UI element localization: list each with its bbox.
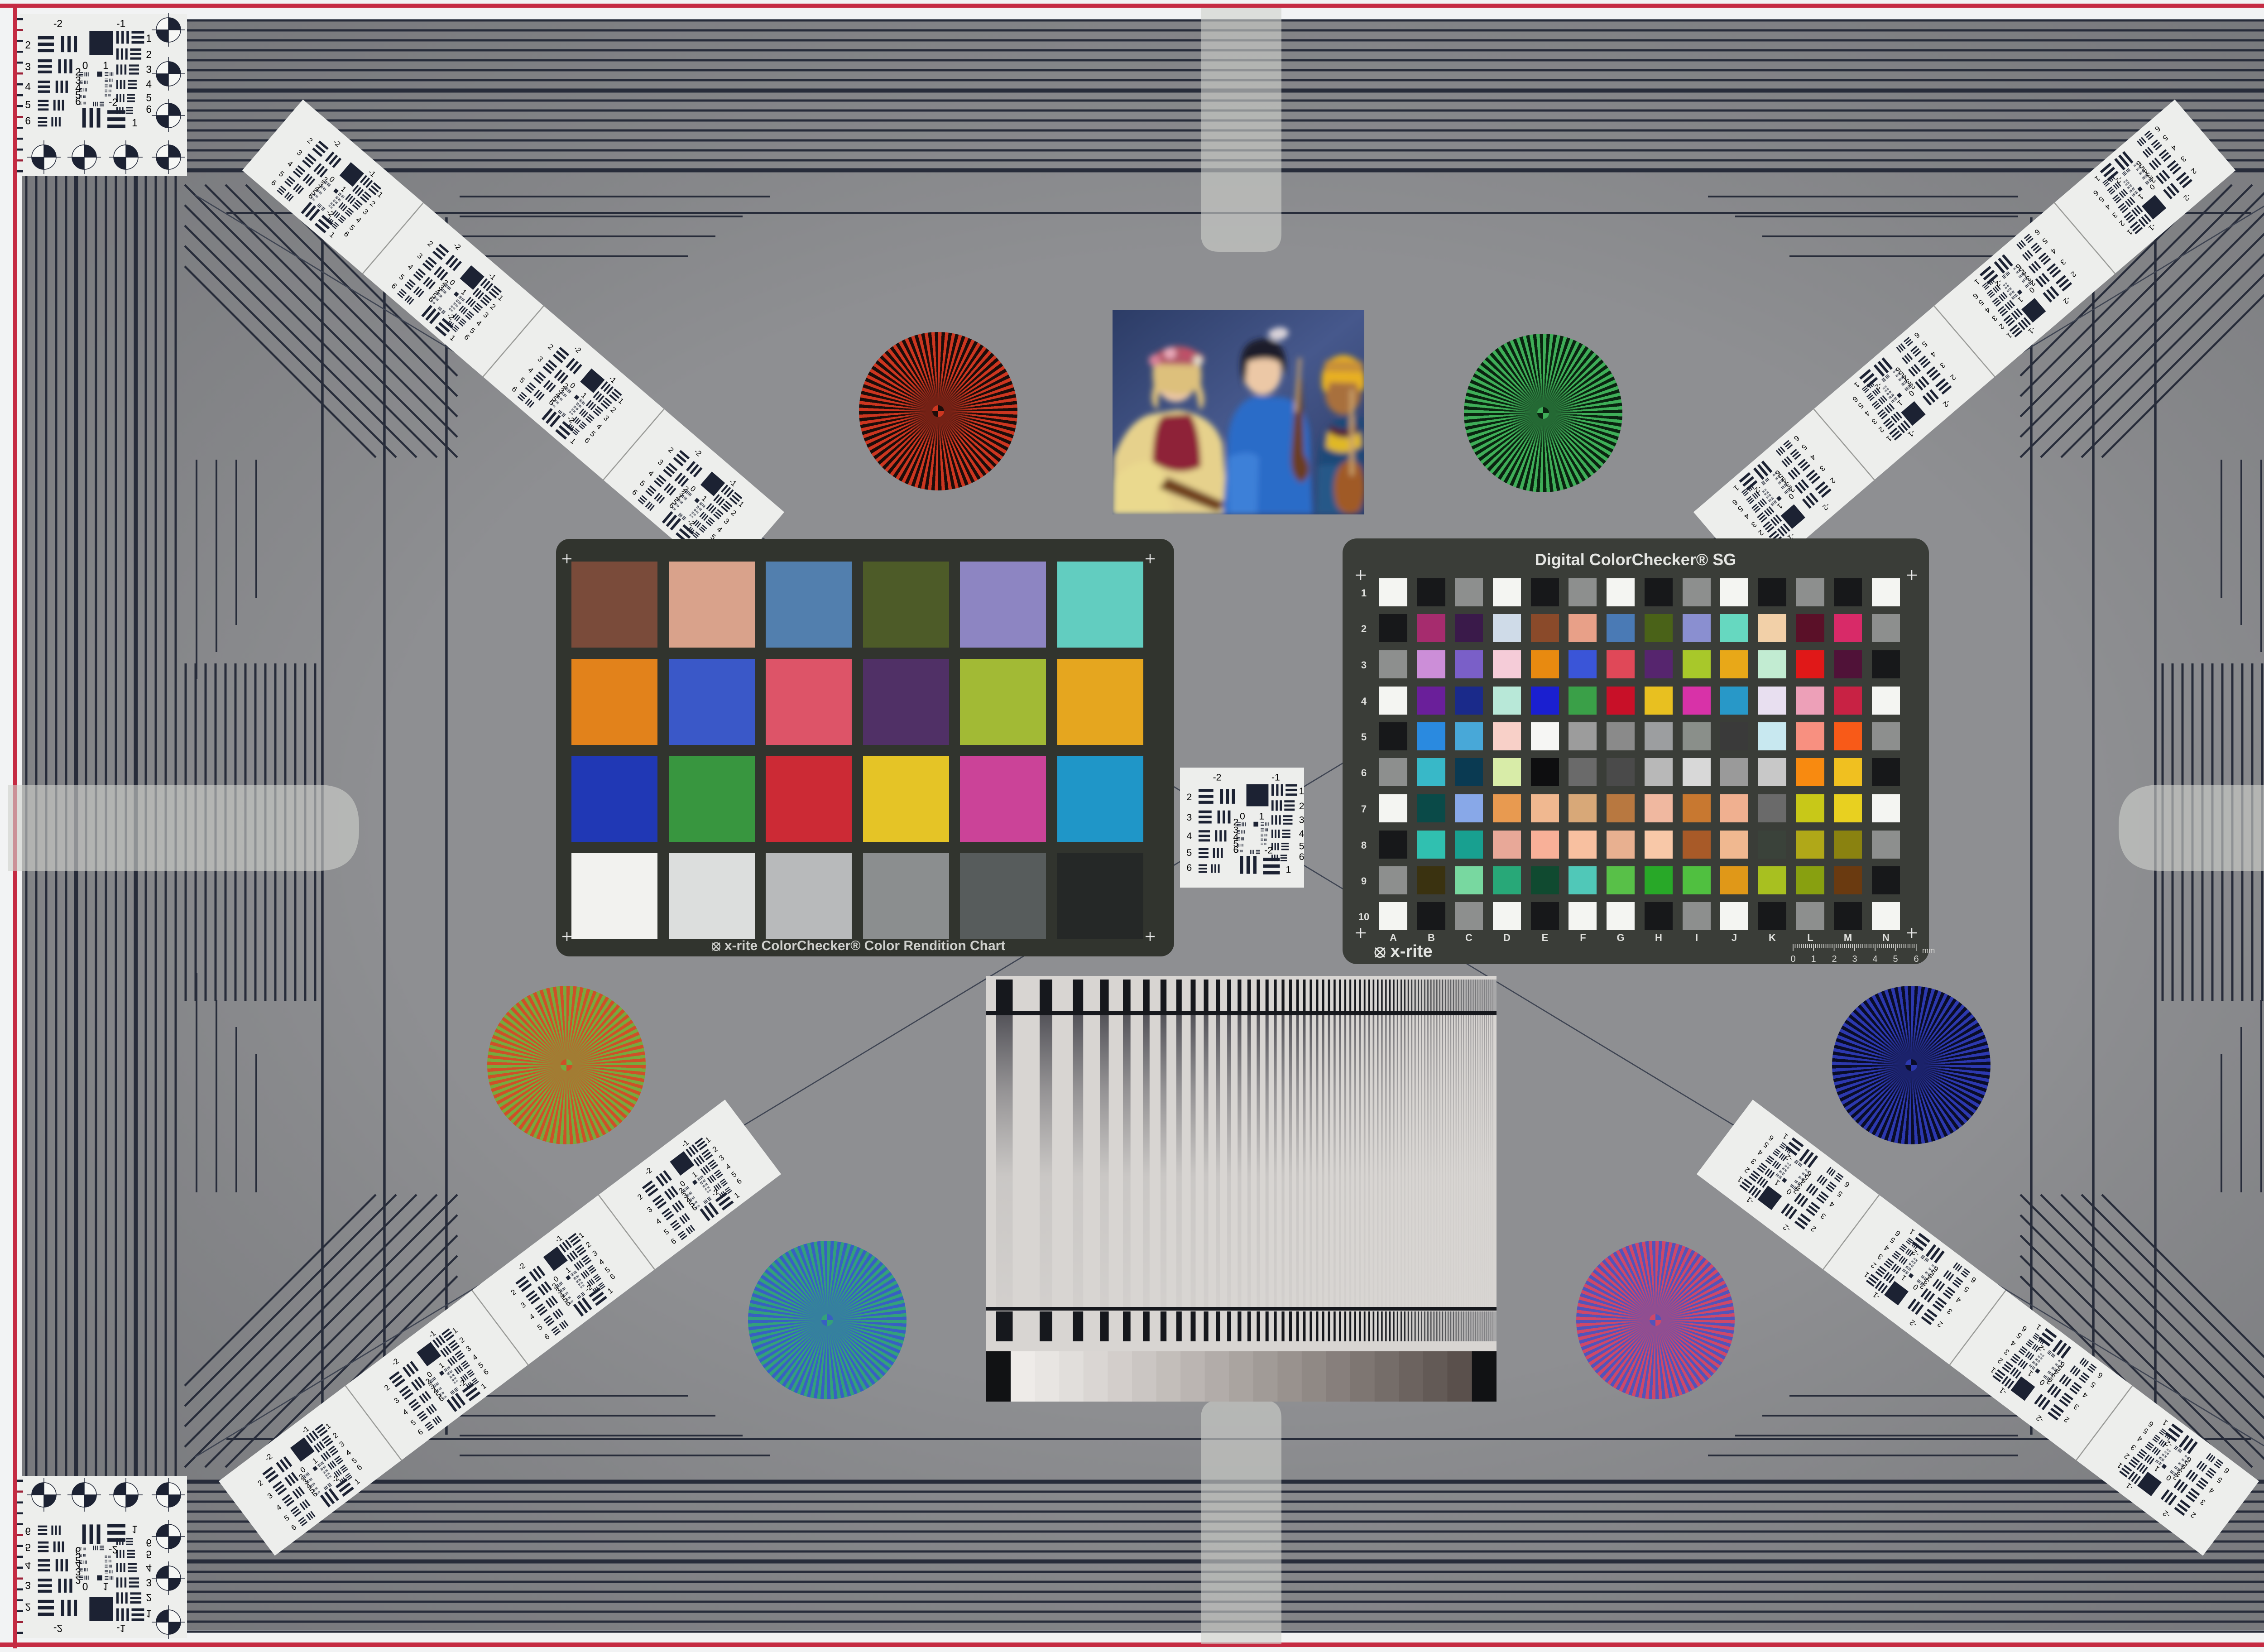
svg-text:6: 6 xyxy=(1361,767,1367,778)
svg-text:D: D xyxy=(1503,932,1511,943)
svg-text:L: L xyxy=(1807,932,1813,943)
svg-text:3: 3 xyxy=(1361,659,1367,671)
svg-text:G: G xyxy=(1616,932,1624,943)
svg-text:8: 8 xyxy=(1361,840,1367,851)
svg-text:6: 6 xyxy=(1914,954,1919,964)
svg-text:5: 5 xyxy=(1893,954,1898,964)
svg-text:C: C xyxy=(1465,932,1473,943)
svg-text:K: K xyxy=(1769,932,1776,943)
svg-text:4: 4 xyxy=(1361,696,1367,707)
svg-text:3: 3 xyxy=(1852,954,1857,964)
svg-text:2: 2 xyxy=(1361,623,1367,634)
svg-text:⦻ x-rite ColorChecker® Color R: ⦻ x-rite ColorChecker® Color Rendition C… xyxy=(712,938,1006,953)
svg-text:7: 7 xyxy=(1361,803,1367,815)
svg-text:5: 5 xyxy=(1361,731,1367,743)
svg-text:Digital ColorChecker® SG: Digital ColorChecker® SG xyxy=(1535,550,1736,569)
svg-text:2: 2 xyxy=(1832,954,1837,964)
svg-text:1: 1 xyxy=(1811,954,1816,964)
svg-text:4: 4 xyxy=(1872,954,1877,964)
svg-text:⦻ x-rite: ⦻ x-rite xyxy=(1374,942,1433,961)
svg-text:10: 10 xyxy=(1358,911,1369,922)
svg-text:F: F xyxy=(1580,932,1586,943)
svg-text:M: M xyxy=(1844,932,1852,943)
svg-text:I: I xyxy=(1695,932,1698,943)
svg-text:J: J xyxy=(1732,932,1737,943)
svg-text:9: 9 xyxy=(1361,875,1367,887)
svg-text:E: E xyxy=(1542,932,1549,943)
svg-text:mm: mm xyxy=(1922,946,1935,955)
svg-text:N: N xyxy=(1882,932,1890,943)
svg-text:0: 0 xyxy=(1790,954,1795,964)
svg-text:1: 1 xyxy=(1361,587,1367,599)
svg-text:H: H xyxy=(1655,932,1662,943)
